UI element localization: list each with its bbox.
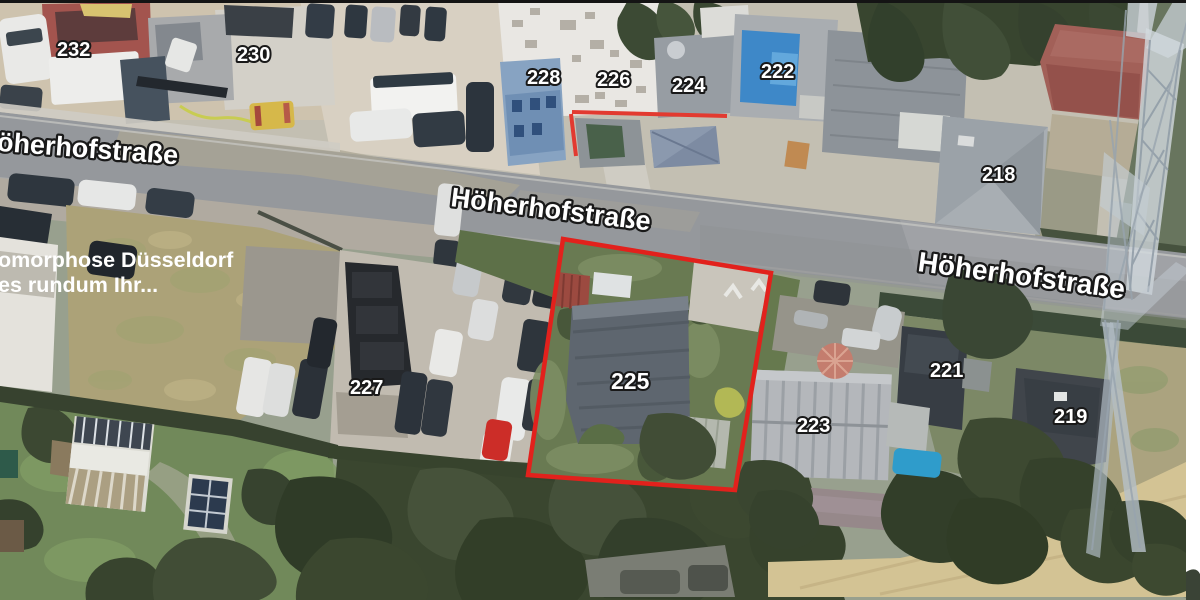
svg-text:226: 226	[597, 69, 630, 91]
svg-text:es rundum Ihr...: es rundum Ihr...	[0, 273, 158, 297]
svg-text:230: 230	[237, 44, 270, 66]
svg-text:232: 232	[57, 39, 90, 61]
svg-text:223: 223	[797, 415, 830, 437]
svg-text:218: 218	[982, 164, 1015, 186]
svg-text:221: 221	[930, 360, 963, 382]
svg-text:227: 227	[350, 377, 383, 399]
svg-text:omorphose Düsseldorf: omorphose Düsseldorf	[0, 248, 234, 272]
svg-text:225: 225	[611, 368, 650, 394]
svg-text:219: 219	[1054, 406, 1087, 428]
svg-text:228: 228	[527, 67, 560, 89]
svg-text:224: 224	[672, 75, 706, 97]
svg-text:222: 222	[761, 61, 794, 83]
